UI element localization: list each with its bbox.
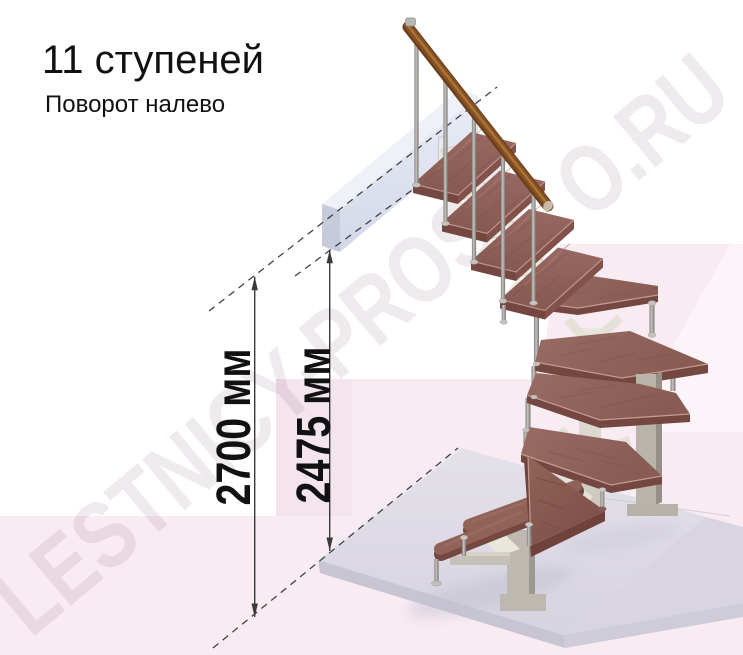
- svg-text:2475 мм: 2475 мм: [288, 347, 341, 504]
- svg-text:Поворот налево: Поворот налево: [45, 91, 225, 118]
- svg-text:2700 мм: 2700 мм: [208, 349, 261, 506]
- svg-text:11 ступеней: 11 ступеней: [42, 38, 264, 82]
